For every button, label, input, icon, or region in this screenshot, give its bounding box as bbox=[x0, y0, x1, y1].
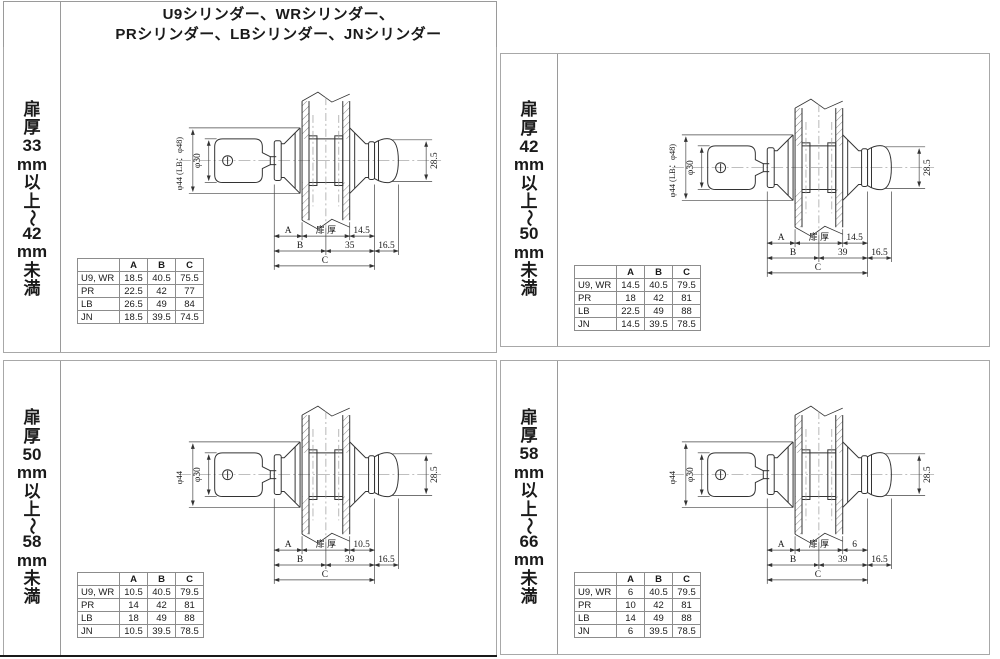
door-label-char: 扉 bbox=[520, 101, 537, 119]
table-cell: 14.5 bbox=[617, 279, 645, 292]
row-label: PR bbox=[575, 292, 617, 305]
table-cell: 88 bbox=[176, 612, 204, 625]
table-cell: 81 bbox=[176, 599, 204, 612]
door-range-column: 扉厚50mm以上〜58mm未満 bbox=[4, 361, 61, 655]
table-row: JN 6 39.5 78.5 bbox=[575, 625, 701, 638]
left-escutcheon bbox=[281, 442, 300, 458]
table-row: U9, WR 14.5 40.5 79.5 bbox=[575, 279, 701, 292]
dim-center-to-back: 35 bbox=[345, 241, 355, 251]
dimension-table: A B C U9, WR 6 40.5 79.5 PR 10 42 81 LB … bbox=[574, 572, 701, 638]
dim-a: A bbox=[778, 540, 785, 550]
table-cell: 42 bbox=[645, 599, 673, 612]
door-label-char: 扉 bbox=[520, 409, 537, 427]
dim-center-to-back: 39 bbox=[838, 555, 848, 565]
door-label-char: 50 bbox=[23, 446, 42, 464]
table-corner-cell bbox=[78, 259, 120, 272]
door-label-char: 58 bbox=[23, 533, 42, 551]
row-label: U9, WR bbox=[575, 279, 617, 292]
dim-knob-depth: 16.5 bbox=[871, 248, 888, 258]
dim-door-thickness: 扉 厚 bbox=[809, 231, 829, 242]
table-cell: 78.5 bbox=[176, 625, 204, 638]
dim-plug-diameter: φ30 bbox=[193, 153, 203, 168]
dim-knob-height: 28.5 bbox=[430, 152, 440, 169]
dim-knob-depth: 16.5 bbox=[378, 555, 395, 565]
catalog-page: U9シリンダー、WRシリンダー、 PRシリンダー、LBシリンダー、JNシリンダー… bbox=[0, 0, 1000, 659]
door-label-char: 厚 bbox=[520, 427, 537, 445]
table-cell: 49 bbox=[148, 612, 176, 625]
door-label-char: 未 bbox=[23, 262, 40, 280]
cylinder-dimension-drawing: φ44 (LB：φ48) φ30 28.5 A 扉 厚 14.5 B 39 16… bbox=[664, 96, 942, 285]
table-cell: 14 bbox=[120, 599, 148, 612]
dim-a: A bbox=[285, 226, 292, 236]
dim-c: C bbox=[322, 256, 328, 266]
quadrant-content: φ44 (LB：φ48) φ30 28.5 A 扉 厚 14.5 B 39 16… bbox=[558, 54, 989, 346]
door-label-char: 50 bbox=[520, 225, 539, 243]
table-corner-cell bbox=[78, 573, 120, 586]
dimension-lines bbox=[189, 128, 432, 270]
title-line2: PRシリンダー、LBシリンダー、JNシリンダー bbox=[115, 25, 441, 45]
door-label-char: 42 bbox=[23, 225, 42, 243]
dim-c: C bbox=[815, 570, 821, 580]
row-label: PR bbox=[575, 599, 617, 612]
table-cell: 79.5 bbox=[176, 586, 204, 599]
table-row: PR 18 42 81 bbox=[575, 292, 701, 305]
table-cell: 18.5 bbox=[120, 272, 148, 285]
door-label-char: 以 bbox=[23, 174, 40, 192]
door-thickness-range-label: 扉厚58mm以上〜66mm未満 bbox=[514, 409, 544, 607]
dim-a: A bbox=[778, 233, 785, 243]
table-cell: 88 bbox=[673, 612, 701, 625]
door-label-char: 満 bbox=[520, 280, 537, 298]
dim-center-to-back: 39 bbox=[838, 248, 848, 258]
door-label-char: 上 bbox=[23, 193, 40, 211]
door-thickness-range-label: 扉厚50mm以上〜58mm未満 bbox=[17, 409, 47, 607]
door-hatch bbox=[795, 415, 802, 453]
row-label: PR bbox=[78, 599, 120, 612]
cylinder-dimension-drawing: φ44 (LB：φ48) φ30 28.5 A 扉 厚 14.5 B 35 16… bbox=[171, 89, 449, 278]
dim-back-offset: 14.5 bbox=[353, 226, 370, 236]
dim-c: C bbox=[322, 570, 328, 580]
table-row: JN 14.5 39.5 78.5 bbox=[575, 318, 701, 331]
door-label-char: mm bbox=[514, 244, 544, 262]
row-label: U9, WR bbox=[78, 586, 120, 599]
drawing-geometry bbox=[179, 406, 441, 543]
dim-center-to-back: 39 bbox=[345, 555, 355, 565]
row-label: LB bbox=[575, 305, 617, 318]
door-hatch bbox=[302, 101, 309, 139]
table-header-a: A bbox=[617, 266, 645, 279]
dim-back-offset: 10.5 bbox=[353, 540, 370, 550]
dim-b: B bbox=[790, 555, 796, 565]
door-thickness-range-label: 扉厚42mm以上〜50mm未満 bbox=[514, 101, 544, 299]
row-label: PR bbox=[78, 285, 120, 298]
dim-knob-height: 28.5 bbox=[923, 466, 933, 483]
table-cell: 84 bbox=[176, 298, 204, 311]
header: U9シリンダー、WRシリンダー、 PRシリンダー、LBシリンダー、JNシリンダー bbox=[3, 1, 497, 48]
dimension-lines bbox=[189, 442, 432, 584]
table-row: U9, WR 10.5 40.5 79.5 bbox=[78, 586, 204, 599]
dim-knob-depth: 16.5 bbox=[378, 241, 395, 251]
door-range-column: 扉厚58mm以上〜66mm未満 bbox=[501, 361, 558, 654]
table-header-a: A bbox=[617, 573, 645, 586]
table-row: LB 26.5 49 84 bbox=[78, 298, 204, 311]
table-header-a: A bbox=[120, 259, 148, 272]
quadrant-content: φ44 φ30 28.5 A 扉 厚 6 B 39 16.5 C A B C U… bbox=[558, 361, 989, 654]
door-label-char: 厚 bbox=[23, 119, 40, 137]
dim-c: C bbox=[815, 263, 821, 273]
quadrant-door-33-42: 扉厚33mm以上〜42mm未満 bbox=[3, 47, 497, 353]
dim-door-thickness: 扉 厚 bbox=[809, 538, 829, 549]
table-header-row: A B C bbox=[78, 259, 204, 272]
door-label-char: 〜 bbox=[522, 517, 536, 534]
table-row: PR 22.5 42 77 bbox=[78, 285, 204, 298]
table-header-b: B bbox=[148, 573, 176, 586]
table-cell: 81 bbox=[673, 599, 701, 612]
table-row: LB 22.5 49 88 bbox=[575, 305, 701, 318]
door-label-char: 58 bbox=[520, 445, 539, 463]
table-header-c: C bbox=[673, 266, 701, 279]
dim-outer-diameter: φ44 (LB：φ48) bbox=[667, 144, 677, 198]
right-escutcheon bbox=[843, 135, 862, 151]
row-label: LB bbox=[78, 612, 120, 625]
drawing-geometry bbox=[179, 92, 441, 229]
dim-outer-diameter: φ44 bbox=[667, 470, 677, 484]
door-label-char: 〜 bbox=[25, 209, 39, 226]
table-corner-cell bbox=[575, 266, 617, 279]
cylinder-dimension-drawing: φ44 φ30 28.5 A 扉 厚 6 B 39 16.5 C bbox=[664, 403, 942, 592]
table-row: LB 14 49 88 bbox=[575, 612, 701, 625]
row-label: U9, WR bbox=[575, 586, 617, 599]
door-label-char: 扉 bbox=[23, 101, 40, 119]
table-cell: 18 bbox=[617, 292, 645, 305]
door-label-char: 42 bbox=[520, 138, 539, 156]
table-cell: 40.5 bbox=[148, 586, 176, 599]
row-label: JN bbox=[575, 625, 617, 638]
door-label-char: 満 bbox=[23, 280, 40, 298]
door-label-char: 満 bbox=[23, 588, 40, 606]
table-cell: 78.5 bbox=[673, 625, 701, 638]
table-cell: 75.5 bbox=[176, 272, 204, 285]
table-header-c: C bbox=[176, 259, 204, 272]
door-label-char: 未 bbox=[520, 262, 537, 280]
dim-a: A bbox=[285, 540, 292, 550]
dim-knob-height: 28.5 bbox=[430, 466, 440, 483]
door-label-char: 厚 bbox=[520, 120, 537, 138]
dim-door-thickness: 扉 厚 bbox=[316, 538, 336, 549]
table-cell: 10 bbox=[617, 599, 645, 612]
dim-outer-diameter: φ44 bbox=[174, 470, 184, 484]
table-cell: 10.5 bbox=[120, 586, 148, 599]
door-label-char: mm bbox=[514, 551, 544, 569]
right-escutcheon bbox=[350, 128, 369, 144]
table-cell: 40.5 bbox=[645, 586, 673, 599]
table-header-row: A B C bbox=[575, 266, 701, 279]
door-label-char: 未 bbox=[520, 570, 537, 588]
row-label: JN bbox=[78, 625, 120, 638]
door-label-char: mm bbox=[514, 464, 544, 482]
table-header-b: B bbox=[148, 259, 176, 272]
table-cell: 81 bbox=[673, 292, 701, 305]
table-cell: 49 bbox=[148, 298, 176, 311]
left-escutcheon bbox=[774, 442, 793, 458]
dim-b: B bbox=[297, 241, 303, 251]
dimension-table: A B C U9, WR 10.5 40.5 79.5 PR 14 42 81 … bbox=[77, 572, 204, 638]
door-thickness-range-label: 扉厚33mm以上〜42mm未満 bbox=[17, 101, 47, 299]
dimension-table: A B C U9, WR 18.5 40.5 75.5 PR 22.5 42 7… bbox=[77, 258, 204, 324]
table-header-row: A B C bbox=[78, 573, 204, 586]
dim-plug-diameter: φ30 bbox=[686, 160, 696, 175]
quadrant-door-58-66: 扉厚58mm以上〜66mm未満 bbox=[500, 360, 990, 655]
row-label: JN bbox=[575, 318, 617, 331]
row-label: LB bbox=[78, 298, 120, 311]
quadrant-content: φ44 (LB：φ48) φ30 28.5 A 扉 厚 14.5 B 35 16… bbox=[61, 47, 496, 352]
door-label-char: 66 bbox=[520, 533, 539, 551]
quadrant-door-50-58: 扉厚50mm以上〜58mm未満 bbox=[3, 360, 497, 656]
door-label-char: 未 bbox=[23, 570, 40, 588]
table-cell: 26.5 bbox=[120, 298, 148, 311]
table-cell: 22.5 bbox=[617, 305, 645, 318]
table-cell: 18 bbox=[120, 612, 148, 625]
left-escutcheon bbox=[281, 128, 300, 144]
quadrant-content: φ44 φ30 28.5 A 扉 厚 10.5 B 39 16.5 C A B … bbox=[61, 361, 496, 655]
door-label-char: mm bbox=[17, 464, 47, 482]
dim-back-offset: 14.5 bbox=[846, 233, 863, 243]
door-label-char: 満 bbox=[520, 588, 537, 606]
table-cell: 18.5 bbox=[120, 311, 148, 324]
row-label: LB bbox=[575, 612, 617, 625]
page-title: U9シリンダー、WRシリンダー、 PRシリンダー、LBシリンダー、JNシリンダー bbox=[61, 2, 496, 47]
door-label-char: 厚 bbox=[23, 428, 40, 446]
door-label-char: 以 bbox=[520, 175, 537, 193]
cylinder-dimension-drawing: φ44 φ30 28.5 A 扉 厚 10.5 B 39 16.5 C bbox=[171, 403, 449, 592]
table-header-c: C bbox=[673, 573, 701, 586]
dim-b: B bbox=[297, 555, 303, 565]
dim-back-offset: 6 bbox=[852, 540, 857, 550]
dim-knob-depth: 16.5 bbox=[871, 555, 888, 565]
dim-b: B bbox=[790, 248, 796, 258]
table-row: PR 10 42 81 bbox=[575, 599, 701, 612]
table-cell: 40.5 bbox=[148, 272, 176, 285]
dimension-lines bbox=[682, 442, 925, 584]
right-escutcheon bbox=[843, 442, 862, 458]
dim-knob-height: 28.5 bbox=[923, 159, 933, 176]
door-label-char: mm bbox=[17, 243, 47, 261]
door-label-char: 以 bbox=[520, 482, 537, 500]
table-corner-cell bbox=[575, 573, 617, 586]
table-cell: 39.5 bbox=[645, 318, 673, 331]
table-row: PR 14 42 81 bbox=[78, 599, 204, 612]
table-cell: 42 bbox=[148, 599, 176, 612]
table-cell: 6 bbox=[617, 625, 645, 638]
dimension-table: A B C U9, WR 14.5 40.5 79.5 PR 18 42 81 … bbox=[574, 265, 701, 331]
table-cell: 40.5 bbox=[645, 279, 673, 292]
door-label-char: mm bbox=[17, 156, 47, 174]
table-cell: 14 bbox=[617, 612, 645, 625]
dim-door-thickness: 扉 厚 bbox=[316, 224, 336, 235]
table-row: U9, WR 18.5 40.5 75.5 bbox=[78, 272, 204, 285]
drawing-geometry bbox=[672, 406, 934, 543]
dim-outer-diameter: φ44 (LB：φ48) bbox=[174, 137, 184, 191]
row-label: JN bbox=[78, 311, 120, 324]
table-cell: 39.5 bbox=[148, 311, 176, 324]
table-cell: 79.5 bbox=[673, 279, 701, 292]
table-cell: 42 bbox=[148, 285, 176, 298]
table-cell: 14.5 bbox=[617, 318, 645, 331]
table-cell: 77 bbox=[176, 285, 204, 298]
bottom-rule bbox=[0, 655, 497, 657]
door-label-char: 33 bbox=[23, 137, 42, 155]
table-cell: 39.5 bbox=[148, 625, 176, 638]
row-label: U9, WR bbox=[78, 272, 120, 285]
door-label-char: mm bbox=[514, 156, 544, 174]
table-cell: 78.5 bbox=[673, 318, 701, 331]
table-cell: 22.5 bbox=[120, 285, 148, 298]
door-hatch bbox=[302, 415, 309, 453]
table-cell: 6 bbox=[617, 586, 645, 599]
right-escutcheon bbox=[350, 442, 369, 458]
door-label-char: 扉 bbox=[23, 409, 40, 427]
table-row: JN 10.5 39.5 78.5 bbox=[78, 625, 204, 638]
table-cell: 42 bbox=[645, 292, 673, 305]
door-range-column: 扉厚33mm以上〜42mm未満 bbox=[4, 47, 61, 352]
dim-plug-diameter: φ30 bbox=[193, 467, 203, 482]
door-label-char: 〜 bbox=[522, 210, 536, 227]
header-label-spacer bbox=[4, 2, 61, 47]
door-label-char: mm bbox=[17, 552, 47, 570]
quadrant-door-42-50: 扉厚42mm以上〜50mm未満 bbox=[500, 53, 990, 347]
table-cell: 39.5 bbox=[645, 625, 673, 638]
table-cell: 79.5 bbox=[673, 586, 701, 599]
dim-plug-diameter: φ30 bbox=[686, 467, 696, 482]
table-header-a: A bbox=[120, 573, 148, 586]
door-range-column: 扉厚42mm以上〜50mm未満 bbox=[501, 54, 558, 346]
table-cell: 88 bbox=[673, 305, 701, 318]
door-label-char: 〜 bbox=[25, 518, 39, 535]
table-cell: 49 bbox=[645, 612, 673, 625]
left-escutcheon bbox=[774, 135, 793, 151]
table-row: JN 18.5 39.5 74.5 bbox=[78, 311, 204, 324]
title-line1: U9シリンダー、WRシリンダー、 bbox=[163, 5, 395, 25]
door-hatch bbox=[795, 108, 802, 146]
table-cell: 74.5 bbox=[176, 311, 204, 324]
table-header-b: B bbox=[645, 573, 673, 586]
door-label-char: 上 bbox=[520, 501, 537, 519]
table-cell: 49 bbox=[645, 305, 673, 318]
table-cell: 10.5 bbox=[120, 625, 148, 638]
table-header-c: C bbox=[176, 573, 204, 586]
table-header-row: A B C bbox=[575, 573, 701, 586]
dimension-lines bbox=[682, 135, 925, 277]
drawing-geometry bbox=[672, 99, 934, 236]
table-row: U9, WR 6 40.5 79.5 bbox=[575, 586, 701, 599]
table-row: LB 18 49 88 bbox=[78, 612, 204, 625]
table-header-b: B bbox=[645, 266, 673, 279]
door-label-char: 以 bbox=[23, 483, 40, 501]
